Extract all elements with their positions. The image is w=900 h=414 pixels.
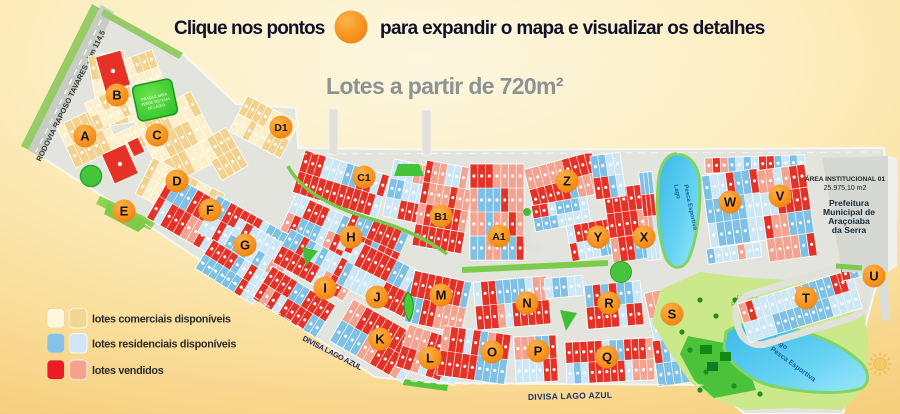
svg-text:J: J xyxy=(373,290,380,305)
svg-text:S: S xyxy=(668,307,677,322)
svg-text:lotes residenciais disponíveis: lotes residenciais disponíveis xyxy=(92,339,236,351)
svg-text:T: T xyxy=(802,291,810,306)
svg-text:I: I xyxy=(323,281,327,296)
svg-text:C1: C1 xyxy=(357,172,371,184)
svg-text:X: X xyxy=(640,230,649,245)
svg-text:da Serra: da Serra xyxy=(832,225,867,235)
svg-text:ÁREA INSTITUCIONAL 01: ÁREA INSTITUCIONAL 01 xyxy=(805,174,886,183)
svg-text:Z: Z xyxy=(563,174,571,189)
svg-text:G: G xyxy=(240,238,250,253)
svg-text:B1: B1 xyxy=(434,211,448,223)
svg-text:N: N xyxy=(522,296,531,311)
svg-text:lotes comerciais disponíveis: lotes comerciais disponíveis xyxy=(92,314,231,326)
svg-text:Y: Y xyxy=(594,230,603,245)
svg-text:M: M xyxy=(436,288,447,303)
svg-text:B: B xyxy=(112,88,121,103)
svg-text:P: P xyxy=(534,344,543,359)
svg-text:A1: A1 xyxy=(492,231,506,243)
svg-text:A: A xyxy=(80,129,90,144)
svg-text:K: K xyxy=(375,332,385,347)
svg-text:lotes vendidos: lotes vendidos xyxy=(92,365,164,377)
svg-text:V: V xyxy=(776,189,785,204)
svg-text:para expandir o mapa e visuali: para expandir o mapa e visualizar os det… xyxy=(380,18,765,39)
svg-text:D1: D1 xyxy=(274,122,288,134)
svg-text:D: D xyxy=(172,174,181,189)
svg-text:Lotes a partir de 720m²: Lotes a partir de 720m² xyxy=(326,73,564,99)
svg-text:E: E xyxy=(120,204,129,219)
svg-text:L: L xyxy=(426,351,434,366)
svg-text:Q: Q xyxy=(602,350,612,365)
svg-text:O: O xyxy=(487,345,497,360)
svg-text:Clique nos pontos: Clique nos pontos xyxy=(174,18,325,39)
svg-text:F: F xyxy=(206,203,214,218)
svg-text:R: R xyxy=(604,296,614,311)
svg-text:C: C xyxy=(152,128,162,143)
svg-text:25.975,10 m2: 25.975,10 m2 xyxy=(824,185,867,192)
svg-text:W: W xyxy=(724,195,737,210)
svg-text:U: U xyxy=(869,269,878,284)
svg-text:H: H xyxy=(346,230,355,245)
